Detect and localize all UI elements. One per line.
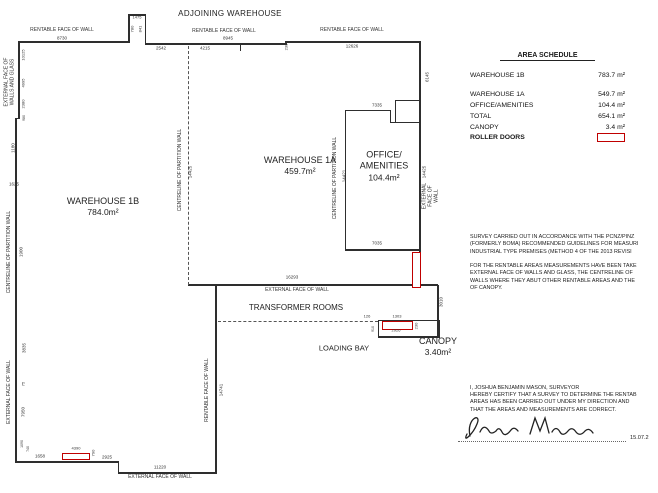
dim-label: 7035 — [372, 240, 382, 245]
dim-label: 4215 — [200, 45, 210, 50]
text-line: FOR THE RENTABLE AREAS MEASUREMENTS HAVE… — [470, 263, 658, 270]
wall — [439, 320, 440, 337]
schedule-row-value: 654.1 m² — [598, 113, 625, 120]
dim-label: 14741 — [218, 384, 223, 397]
loading-bay-label: LOADING BAY — [319, 343, 369, 352]
wall — [395, 100, 420, 101]
dim-label: 16293 — [286, 274, 299, 279]
dim-label: EXTERNAL FACE OF WALL — [7, 360, 13, 424]
room-name: CANOPY — [419, 336, 457, 347]
wall — [215, 285, 217, 473]
schedule-row-value: 549.7 m² — [598, 91, 625, 98]
dim-label: RENTABLE FACE OF WALL — [320, 28, 384, 34]
schedule-row: OFFICE/AMENITIES104.4 m² — [470, 102, 625, 109]
schedule-row: WAREHOUSE 1B783.7 m² — [470, 72, 625, 79]
dim-label: 7950 — [20, 407, 25, 417]
dim-label: 14425 — [421, 166, 426, 179]
roller-door — [62, 453, 90, 460]
dim-label: 4390 — [72, 447, 81, 452]
text-line: AREAS HAS BEEN CARRIED OUT UNDER MY DIRE… — [470, 399, 658, 406]
dim-label: 4995 — [22, 79, 27, 88]
dim-label: 11220 — [154, 464, 166, 469]
schedule-row: CANOPY3.4 m² — [470, 124, 625, 131]
floor-plan: ADJOINING WAREHOUSE WAREHOUSE 1B 784.0m²… — [0, 0, 460, 493]
room-name: WAREHOUSE 1B — [67, 196, 139, 207]
dim-label: 2380 — [22, 100, 27, 109]
canopy-label: CANOPY 3.40m² — [419, 336, 457, 358]
text-line — [470, 256, 658, 263]
dim-label: CENTRELINE OF PARTITION WALL — [178, 129, 184, 211]
room-area: 459.7m² — [264, 166, 336, 177]
dim-label: EXTERNAL FACE OF WALL — [128, 475, 192, 481]
wall — [146, 43, 285, 45]
dim-label: 2925 — [102, 454, 112, 459]
room-area: 104.4m² — [360, 172, 409, 183]
dim-label: 2926 — [392, 329, 401, 334]
dim-label: 1658 — [35, 453, 45, 458]
roller-doors-row: ROLLER DOORS — [470, 133, 625, 142]
dim-label: 841 — [139, 26, 144, 33]
text-line: HEREBY CERTIFY THAT A SURVEY TO DETERMIN… — [470, 392, 658, 399]
dim-label: 7335 — [372, 102, 382, 107]
dim-label: 740 — [26, 446, 30, 452]
loading-bay-dashed-line — [218, 321, 378, 322]
text-line: SURVEY CARRIED OUT IN ACCORDANCE WITH TH… — [470, 234, 658, 241]
dim-label: 230 — [285, 44, 290, 51]
dim-label: 8730 — [57, 35, 67, 40]
signature-line — [458, 441, 626, 442]
schedule-row-label: TOTAL — [470, 113, 491, 120]
dim-label: EXTERNAL FACE OF WALL — [422, 182, 439, 211]
transformer-rooms-label: TRANSFORMER ROOMS — [249, 303, 343, 313]
text-line: I, JOSHUA BENJAMIN MASON, SURVEYOR — [470, 385, 658, 392]
office-amenities-label: OFFICE/ AMENITIES 104.4m² — [360, 149, 409, 182]
dim-label: 6145 — [424, 72, 429, 82]
dim-label: 780 — [131, 26, 136, 33]
roller-doors-label: ROLLER DOORS — [470, 134, 525, 141]
dim-label: 910 — [371, 326, 375, 332]
schedule-row-value: 104.4 m² — [598, 102, 625, 109]
dim-label: 14421 — [341, 170, 346, 183]
text-line: EXTERNAL FACE OF WALLS AND GLASS, THE CE… — [470, 270, 658, 277]
roller-door — [412, 252, 421, 288]
dim-label: RENTABLE FACE OF WALL — [30, 28, 94, 34]
dim-label: 126 — [364, 315, 371, 320]
wall — [18, 41, 20, 119]
dim-label: EXTERNAL FACE OF WALL — [265, 288, 329, 294]
dim-label: 12626 — [346, 43, 359, 48]
dim-label: 1090 — [20, 440, 24, 448]
wall — [145, 14, 147, 45]
wall — [188, 284, 438, 286]
wall — [345, 110, 391, 111]
dim-label: 3835 — [21, 343, 26, 353]
room-area: 784.0m² — [67, 207, 139, 218]
adjoining-warehouse-label: ADJOINING WAREHOUSE — [178, 9, 282, 19]
wall — [378, 320, 379, 337]
wall — [345, 249, 420, 251]
dim-label: CENTRELINE OF PARTITION WALL — [7, 211, 13, 293]
dim-label: RENTABLE FACE OF WALL — [192, 29, 256, 35]
floor-plan-page: ADJOINING WAREHOUSE WAREHOUSE 1B 784.0m²… — [0, 0, 658, 493]
dim-label: CENTRELINE OF PARTITION WALL — [333, 137, 339, 219]
dim-label: 790 — [92, 450, 97, 457]
dim-label: RENTABLE FACE OF WALL — [205, 358, 211, 422]
dim-label: 1475 — [133, 16, 142, 21]
wall — [395, 100, 396, 123]
survey-notes: SURVEY CARRIED OUT IN ACCORDANCE WITH TH… — [470, 234, 658, 292]
schedule-row-label: OFFICE/AMENITIES — [470, 102, 533, 109]
dim-label: 1180 — [10, 143, 15, 153]
room-name: WAREHOUSE 1A — [264, 155, 336, 166]
signature-date: 15.07.2 — [630, 435, 649, 441]
dim-label: 14425 — [187, 166, 192, 179]
room-name: OFFICE/ — [360, 149, 409, 160]
schedule-row-label: WAREHOUSE 1A — [470, 91, 525, 98]
room-name: AMENITIES — [360, 161, 409, 172]
wall-tick — [240, 43, 241, 51]
wall — [18, 41, 128, 43]
warehouse-1a-label: WAREHOUSE 1A 459.7m² — [264, 155, 336, 177]
text-line: (FORMERLY BOMA) RECOMMENDED GUIDELINES F… — [470, 241, 658, 248]
warehouse-1b-label: WAREHOUSE 1B 784.0m² — [67, 196, 139, 218]
schedule-row-label: CANOPY — [470, 124, 499, 131]
schedule-row-label: WAREHOUSE 1B — [470, 72, 525, 79]
text-line: OF CANOPY. — [470, 285, 658, 292]
dim-label: 230 — [415, 323, 420, 330]
dim-label: 10125 — [22, 49, 27, 60]
dim-label: 75 — [22, 382, 27, 386]
dim-label: 2542 — [156, 45, 166, 50]
dim-label: 1303 — [393, 315, 402, 320]
text-line: WALLS WHERE THEY ABUT OTHER RENTABLE ARE… — [470, 278, 658, 285]
schedule-row: TOTAL654.1 m² — [470, 113, 625, 120]
dim-label: 1900 — [18, 247, 23, 257]
dim-label: 3010 — [438, 297, 443, 307]
dim-label: 1625 — [9, 181, 19, 186]
wall — [390, 122, 420, 123]
roller-door-legend-swatch — [597, 133, 625, 142]
text-line: INDUSTRIAL TYPE PREMISES (METHOD 4 OF TH… — [470, 249, 658, 256]
room-area: 3.40m² — [419, 347, 457, 358]
dim-label: EXTERNAL FACE OF WALLS AND GLASS — [4, 58, 16, 107]
wall — [15, 461, 119, 463]
dim-label: 980 — [22, 115, 26, 121]
schedule-row-value: 3.4 m² — [606, 124, 625, 131]
dim-label: 8945 — [223, 35, 233, 40]
schedule-row: WAREHOUSE 1A549.7 m² — [470, 91, 625, 98]
schedule-row-value: 783.7 m² — [598, 72, 625, 79]
surveyor-signature — [458, 408, 623, 444]
wall — [15, 119, 17, 462]
